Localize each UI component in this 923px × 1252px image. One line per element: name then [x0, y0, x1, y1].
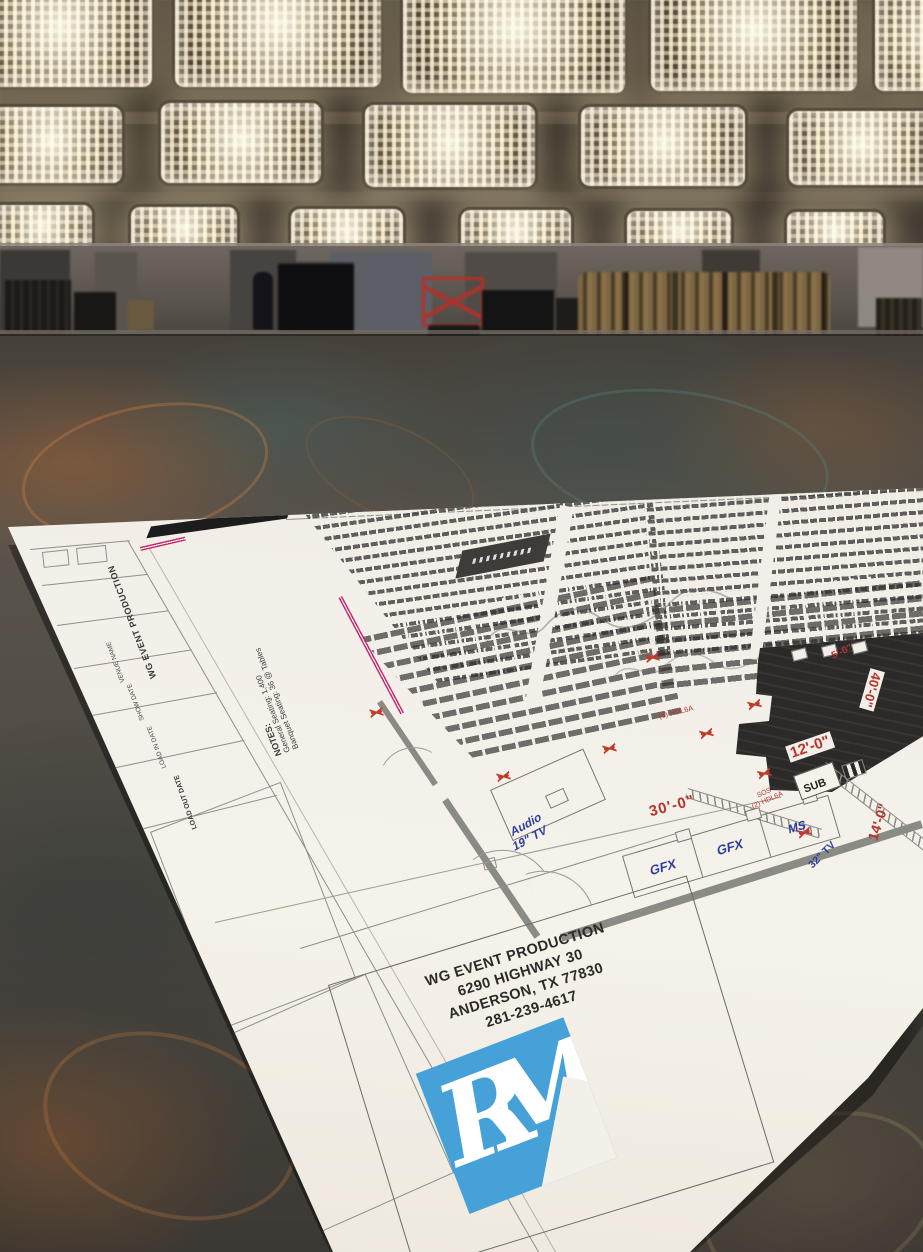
titleblock-field-showdate: SHOW DATE	[126, 683, 146, 722]
x-mark	[747, 698, 762, 712]
drape-line	[140, 537, 186, 551]
stacked-chairs	[578, 272, 830, 334]
speaker-label-side: SOS (2) HDL6A	[748, 783, 784, 810]
scissor-lift	[422, 277, 484, 327]
ballroom-photo: WG EVENT PRODUCTION VENUE NAME SHOW DATE…	[0, 0, 923, 1252]
titleblock-divider	[112, 740, 244, 769]
titleblock-divider	[42, 574, 148, 586]
x-mark	[699, 727, 714, 741]
footer-box: WG EVENT PRODUCTION 6290 HIGHWAY 30 ANDE…	[328, 875, 774, 1252]
riser-text-marks	[472, 547, 532, 564]
road-case	[278, 262, 354, 332]
table-divider	[691, 836, 704, 877]
wood-crate	[128, 300, 154, 330]
equipment-cart	[74, 292, 116, 332]
titleblock-stamp-box	[42, 549, 70, 568]
x-mark	[645, 651, 660, 664]
company-logo: RM	[416, 1017, 617, 1214]
x-mark	[602, 742, 617, 755]
titleblock-stamp-box	[76, 545, 108, 565]
x-mark	[369, 706, 384, 719]
titleblock-field-loadin: LOAD IN DATE	[146, 725, 168, 769]
titleblock-divider	[74, 649, 192, 669]
equipment-cart	[5, 280, 71, 332]
titleblock-divider	[57, 610, 168, 626]
table-divider	[758, 816, 771, 857]
plan-notes: NOTES: General Seating: 1,400 Banquet Se…	[236, 647, 301, 758]
person-silhouette	[253, 272, 273, 330]
titleblock-divider	[92, 692, 217, 716]
road-case	[482, 290, 554, 332]
